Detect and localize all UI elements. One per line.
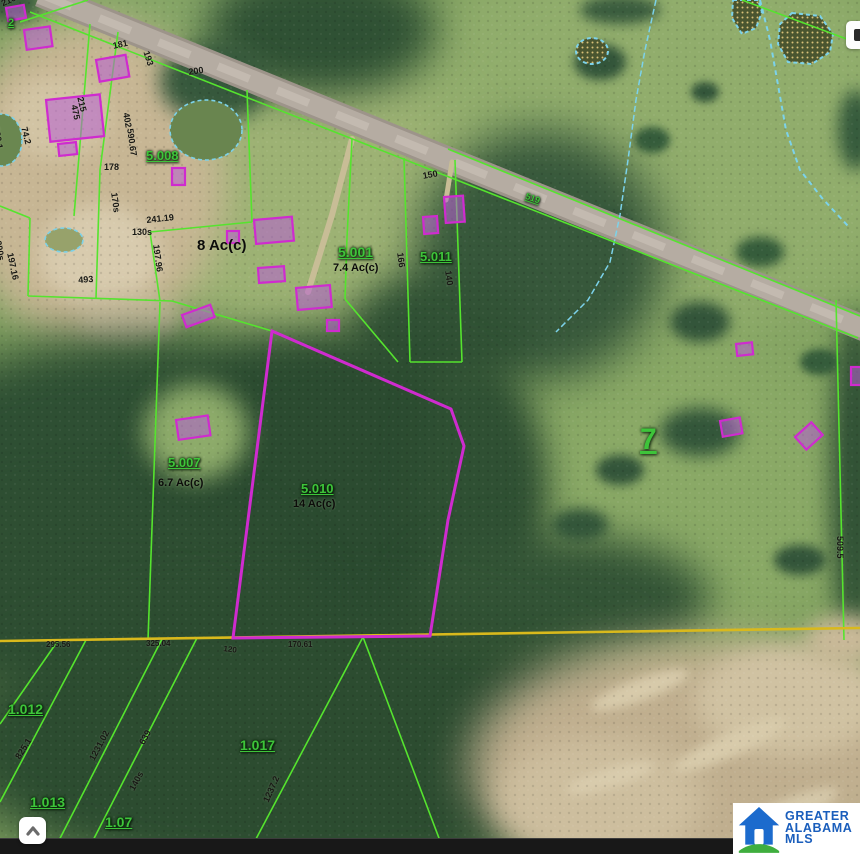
mls-attribution-logo: GREATER ALABAMA MLS bbox=[733, 803, 860, 854]
building-footprint bbox=[24, 26, 53, 49]
pond bbox=[45, 228, 83, 252]
building-footprint bbox=[176, 416, 210, 440]
building-footprint bbox=[96, 55, 129, 82]
panel-handle-icon bbox=[854, 29, 860, 41]
building-footprint bbox=[172, 168, 185, 185]
building-footprint bbox=[6, 5, 26, 21]
house-icon bbox=[737, 805, 781, 853]
building-footprint bbox=[444, 196, 465, 223]
map-control-button[interactable] bbox=[846, 21, 860, 49]
scroll-to-top-button[interactable] bbox=[19, 817, 46, 844]
building-footprint bbox=[851, 367, 860, 385]
pond bbox=[576, 38, 608, 64]
building-footprint bbox=[58, 142, 77, 156]
building-footprint bbox=[327, 320, 339, 331]
building-footprint bbox=[254, 217, 294, 244]
building-footprint bbox=[296, 285, 332, 310]
logo-line-3: MLS bbox=[785, 834, 852, 846]
bottom-bar bbox=[0, 838, 860, 854]
building-footprint bbox=[227, 231, 239, 243]
pond bbox=[170, 100, 242, 160]
building-footprint bbox=[736, 342, 753, 356]
chevron-up-icon bbox=[24, 822, 42, 840]
building-footprint bbox=[720, 418, 742, 437]
aerial-map-canvas bbox=[0, 0, 860, 854]
map-view[interactable]: 5.0085.0015.0115.0075.0101.0121.0131.017… bbox=[0, 0, 860, 854]
building-footprint bbox=[258, 266, 285, 283]
building-footprint bbox=[46, 94, 104, 141]
building-footprint bbox=[423, 216, 438, 234]
